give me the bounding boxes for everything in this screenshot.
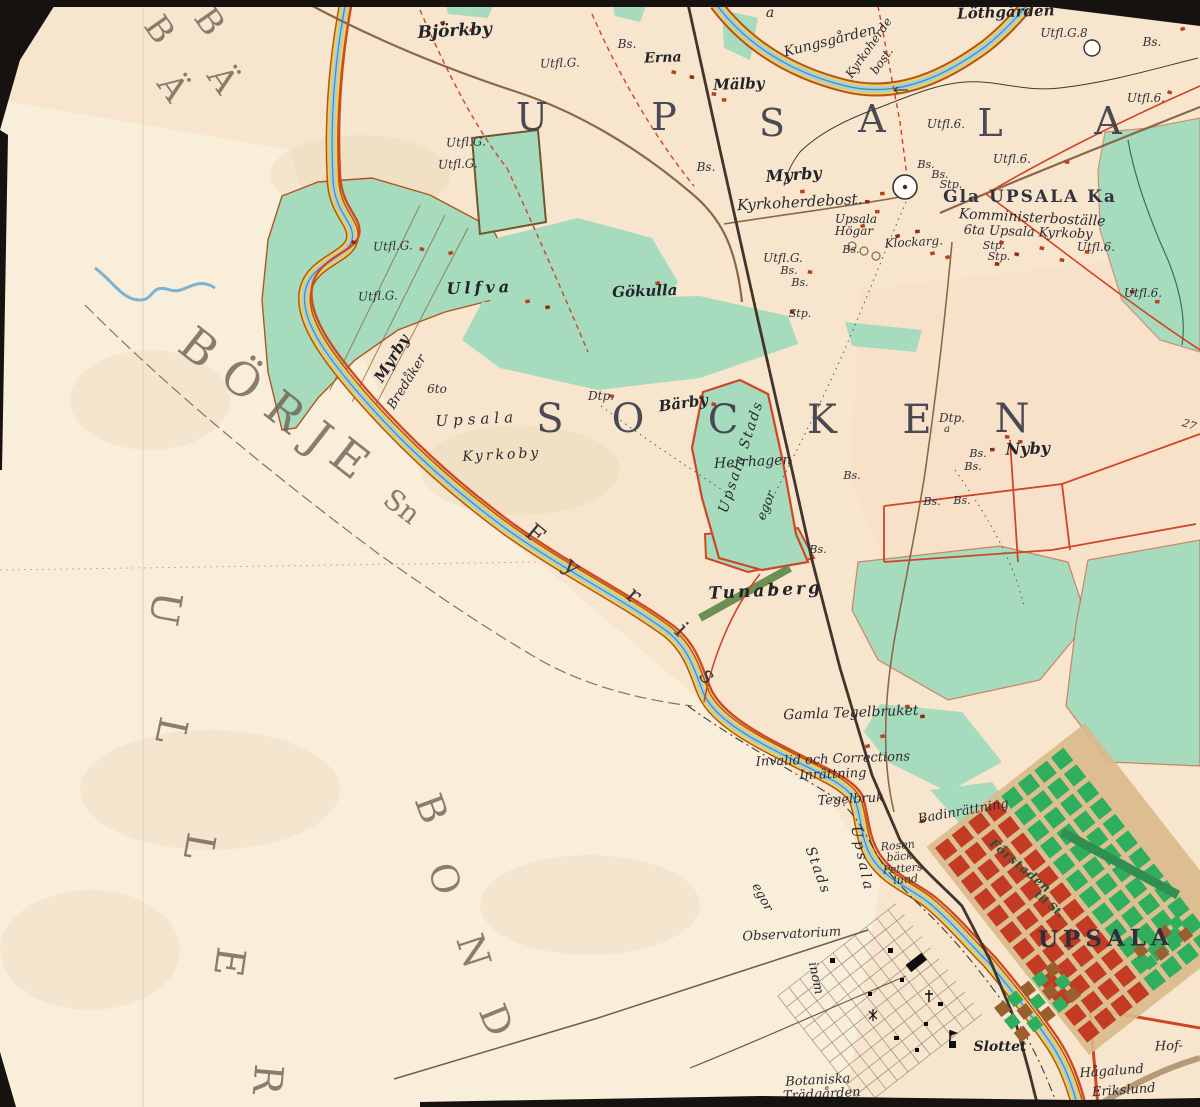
- map-photo: UPSALASOCKENUPSALAGla UPSALA KaBÖRJESnUL…: [0, 0, 1200, 1107]
- map-label-utfl-6-99: Utfl.6.: [1077, 240, 1115, 254]
- map-label-p-1: P: [651, 95, 677, 139]
- map-label-dtp-65: Dtp.: [938, 411, 965, 425]
- church-ring-icon: [1084, 40, 1100, 56]
- map-label-stp-104: Stp.: [940, 178, 963, 191]
- map-label-bs-114: Bs.: [790, 276, 808, 289]
- map-label-lund-77: lund: [893, 872, 919, 887]
- map-label-bs-119: Bs.: [922, 495, 940, 508]
- map-label-utfl-g-111: Utfl.G.: [358, 288, 398, 303]
- map-label-utfl-6-96: Utfl.6.: [1127, 91, 1165, 105]
- map-label-utfl-g-110: Utfl.G.: [373, 238, 413, 253]
- map-label-hof-90: Hof-: [1154, 1039, 1183, 1055]
- map-label-bs-116: Bs.: [842, 469, 860, 482]
- map-label-6to-57: 6to: [427, 382, 447, 396]
- map-label-e-10: E: [902, 397, 931, 443]
- map-label-utfl-g-109: Utfl.G.: [438, 156, 478, 171]
- map-label-gla-upsala-ka-13: Gla UPSALA Ka: [943, 187, 1117, 207]
- map-label-bs-91: Bs.: [617, 37, 637, 51]
- map-label-bs-122: Bs.: [808, 543, 826, 556]
- map-label-utfl-6-98: Utfl.6.: [993, 152, 1031, 166]
- map-label-ulfva-53: Ulfva: [446, 277, 513, 298]
- map-label-c-8: C: [708, 397, 739, 443]
- map-label-utfl-6-100: Utfl.6.: [1124, 286, 1162, 300]
- map-label-r-24: R: [243, 1062, 292, 1098]
- map-label-slottet-85: Slottet: [973, 1039, 1027, 1055]
- map-label-o-7: O: [612, 396, 645, 442]
- map-label-k-9: K: [807, 397, 838, 443]
- map-label-n-11: N: [995, 396, 1030, 442]
- map-label-bj-rkby-38: Björkby: [416, 19, 493, 43]
- map-label-bs-118: Bs.: [963, 460, 981, 473]
- map-label-nyby-67: Nyby: [1004, 438, 1052, 459]
- map-label-s-6: S: [536, 396, 563, 442]
- map-label-stp-107: Stp.: [988, 250, 1011, 263]
- map-label-s-2: S: [759, 101, 785, 145]
- gamla-upsala-church-ring-icon: [893, 175, 917, 199]
- map-label-a-5: A: [1093, 99, 1122, 143]
- map-label-bs-95: Bs.: [1142, 35, 1162, 49]
- historical-map-of-upsala: UPSALASOCKENUPSALAGla UPSALA KaBÖRJESnUL…: [0, 0, 1200, 1107]
- map-label-l-4: L: [977, 101, 1002, 145]
- map-label-g-kulla-54: Gökulla: [612, 281, 678, 301]
- map-label-h-gar-49: Högar: [834, 224, 875, 238]
- map-label-utfl-g-112: Utfl.G.: [763, 251, 803, 265]
- map-label-u-0: U: [516, 95, 548, 139]
- map-label-a-66: a: [944, 424, 950, 435]
- map-label-stp-115: Stp.: [789, 307, 812, 320]
- map-label-utfl-g-92: Utfl.G.: [540, 55, 580, 70]
- map-label-dtp-60: Dtp.: [587, 389, 614, 403]
- map-label-bs-117: Bs.: [968, 447, 986, 460]
- map-label-utfl-g-8-93: Utfl.G.8: [1040, 26, 1088, 40]
- map-label-upsala-12: UPSALA: [1038, 924, 1174, 953]
- map-label-a-45: a: [766, 5, 774, 21]
- map-label-bs-120: Bs.: [952, 494, 970, 507]
- map-label-bs-101: Bs.: [696, 160, 716, 174]
- map-label-inr-ttning-71: Inrättning: [798, 766, 867, 783]
- map-label-utfl-g-108: Utfl.G.: [446, 134, 486, 149]
- map-label-erna-39: Erna: [643, 49, 682, 66]
- map-label-a-3: A: [857, 97, 886, 141]
- map-label-m-lby-40: Mälby: [712, 74, 766, 94]
- map-label-utfl-6-97: Utfl.6.: [927, 117, 965, 131]
- map-label-bs-105: Bs.: [841, 243, 859, 256]
